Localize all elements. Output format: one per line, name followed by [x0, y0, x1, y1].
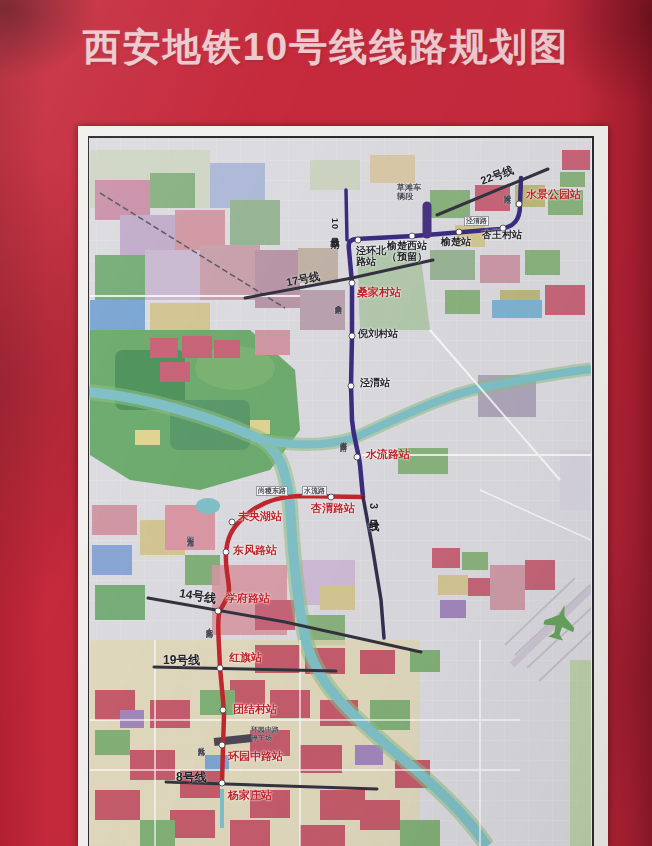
map-frame-border	[88, 136, 594, 846]
poster-photo: 西安地铁10号线线路规划图 西安市地铁十号线一期工程（杨家庄～水景公园）线路平面…	[0, 0, 652, 846]
map-title: 西安市地铁十号线一期工程（杨家庄～水景公园）线路平面示意图	[78, 140, 594, 157]
map-sheet: 西安市地铁十号线一期工程（杨家庄～水景公园）线路平面示意图	[78, 126, 608, 846]
poster-title: 西安地铁10号线线路规划图	[0, 22, 652, 73]
